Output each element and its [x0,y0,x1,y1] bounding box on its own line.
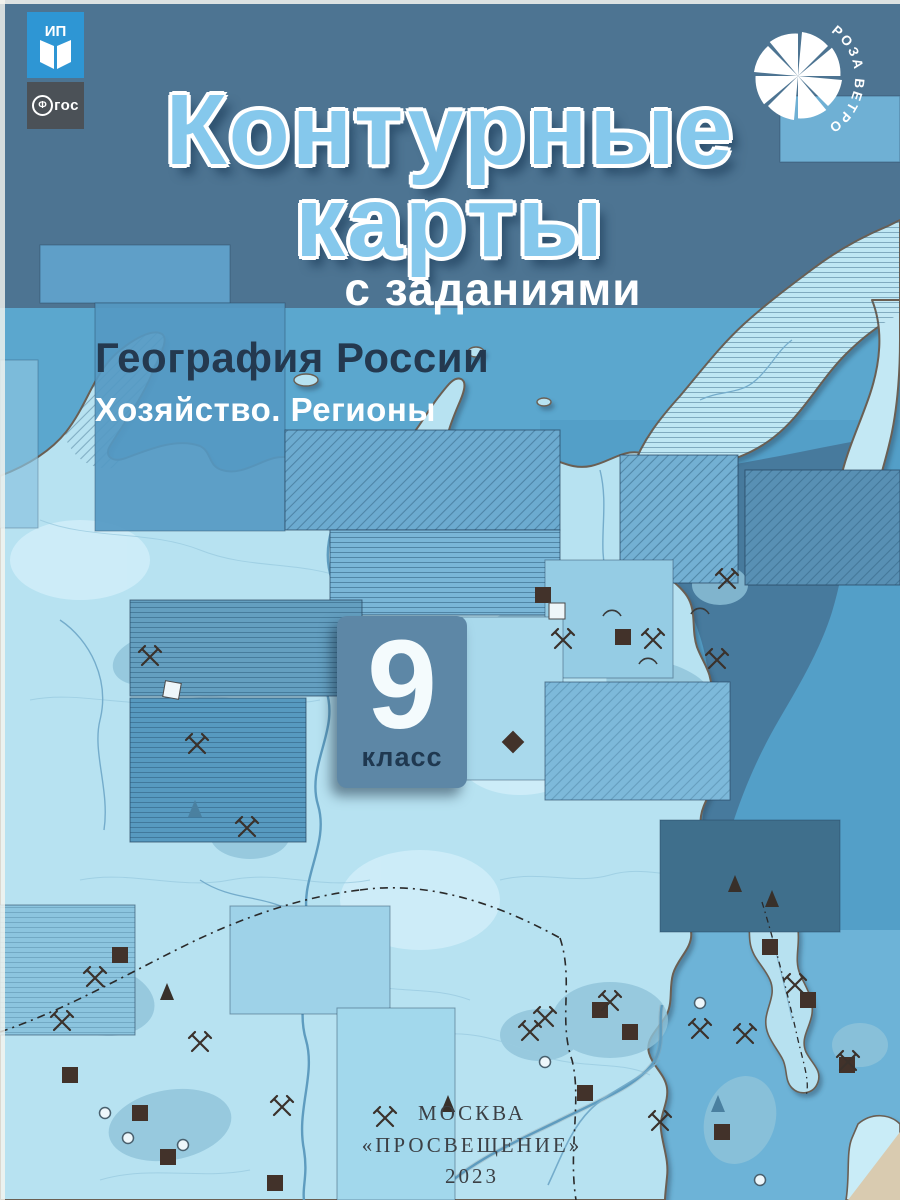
scan-edge-left [0,0,5,1200]
book-cover: ИП Ф гос РОЗА ВЕТРОВ Контурные [0,0,900,1200]
imprint: МОСКВА «ПРОСВЕЩЕНИЕ» 2023 [22,1098,900,1193]
series-block: География России Хозяйство. Регионы [95,334,489,429]
book-subtitle: с заданиями [43,262,900,316]
open-book-icon: ИП [27,12,84,78]
title-line-2: карты [0,176,900,268]
publisher-logo: ИП [27,12,84,78]
imprint-year: 2023 [22,1161,900,1193]
grade-badge: 9 класс [337,616,467,788]
grade-number: 9 [367,622,437,748]
imprint-city: МОСКВА [22,1098,900,1130]
series-title: География России [95,334,489,382]
series-subtitle: Хозяйство. Регионы [95,391,489,429]
title-line-1: Контурные [0,84,900,176]
page-corner-curl [848,1132,900,1200]
grade-label: класс [361,742,442,773]
publisher-logo-mark: ИП [45,23,67,40]
book-title: Контурные карты [0,84,900,268]
imprint-publisher: «ПРОСВЕЩЕНИЕ» [22,1130,900,1162]
scan-edge-top [0,0,900,4]
